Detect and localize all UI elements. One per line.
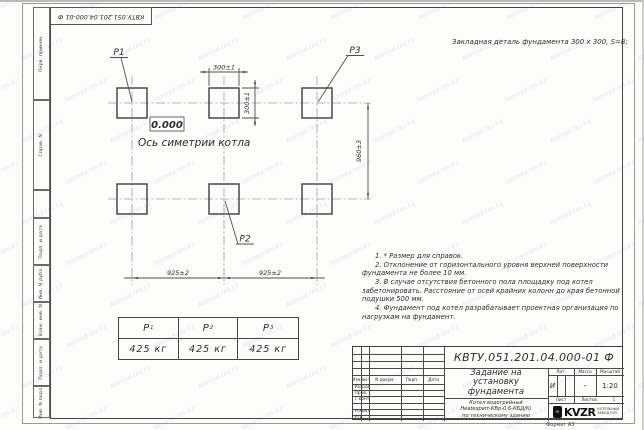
masshtab-header: Масштаб	[596, 368, 624, 375]
label-p2: P2	[239, 235, 250, 245]
level-mark-value: 0.000	[151, 120, 183, 131]
col-podp: Подп.	[401, 375, 423, 384]
masshtab-value: 1:20	[596, 375, 624, 396]
listov-value: 1	[604, 396, 624, 403]
doc-number: КВТУ.051.201.04.000-01 Ф	[444, 347, 624, 368]
object-description: Котел водогрейный Heatexpert-КВр-0,6-КБД…	[444, 398, 548, 421]
dim-300-horizontal: 300±1	[213, 64, 235, 72]
doc-title: Задание на установку фундамента	[444, 368, 548, 398]
load-table: P1 P2 P3 425 кг 425 кг 425 кг	[118, 317, 299, 360]
leader-lines	[110, 56, 364, 245]
label-p3: P3	[349, 46, 360, 56]
load-table-header-p1: P1	[119, 318, 179, 339]
list-label: Лист	[548, 396, 574, 403]
col-list: Лист	[361, 375, 369, 384]
note-4: 4. Фундамент под котел разрабатывает про…	[362, 304, 636, 321]
kvzr-logo-caption: КОТЕЛЬНЫЙ ЗАВОД РЭП	[597, 408, 619, 416]
dim-925-left: 925±2	[167, 269, 189, 277]
load-table-header-p2: P2	[179, 318, 239, 339]
col-izm: Изм.	[353, 375, 361, 384]
doc-title-line: фундамента	[468, 388, 524, 398]
lit-value: И	[548, 375, 557, 396]
note-2: 2. Отклонение от горизонтального уровня …	[362, 261, 636, 278]
load-table-header-p3: P3	[238, 318, 298, 339]
dim-300-vertical: 300±1	[243, 92, 251, 114]
col-data: Дата	[423, 375, 444, 384]
kvzr-caption-line2: ЗАВОД РЭП	[597, 412, 619, 416]
note-3: 3. В случае отсутствия бетонного пола пл…	[362, 278, 636, 304]
load-value-p2: 425 кг	[179, 339, 239, 359]
p-index: 2	[210, 325, 214, 331]
dim-925-right: 925±2	[259, 269, 281, 277]
company-logo-cell: ≈ KVZR КОТЕЛЬНЫЙ ЗАВОД РЭП	[548, 403, 624, 421]
p-symbol: P	[143, 323, 149, 334]
format-note: Формат А3	[546, 422, 574, 428]
label-p1: P1	[113, 48, 124, 58]
axis-symmetry-label: Ось симетрии котла	[138, 137, 250, 149]
col-n-dokum: N докум.	[369, 375, 401, 384]
row-utv: Утв.	[353, 415, 369, 421]
p-symbol: P	[263, 323, 269, 334]
dim-960: 960±3	[355, 140, 363, 162]
note-1: 1. * Размер для справок.	[362, 252, 636, 261]
kvzr-logo-text: KVZR	[564, 406, 595, 419]
kvzr-logo-icon: ≈	[553, 406, 562, 418]
foundation-pads	[117, 88, 332, 214]
load-value-p1: 425 кг	[119, 339, 179, 359]
load-value-p3: 425 кг	[238, 339, 298, 359]
object-line: по техническому зданию	[462, 413, 530, 419]
massa-value: -	[574, 375, 596, 396]
drawing-sheet: Nomad-tev.kzNomad-tev.kzNomad-tev.kzNoma…	[0, 0, 644, 430]
massa-header: Масса	[574, 368, 596, 375]
title-block: Изм. Лист N докум. Подп. Дата Разраб. Пр…	[352, 346, 623, 420]
listov-label: Листов	[574, 396, 604, 403]
lit-header: Лит.	[548, 368, 574, 375]
p-index: 3	[270, 325, 274, 331]
p-index: 1	[150, 325, 154, 331]
notes-block: 1. * Размер для справок. 2. Отклонение о…	[362, 252, 636, 322]
p-symbol: P	[203, 323, 209, 334]
